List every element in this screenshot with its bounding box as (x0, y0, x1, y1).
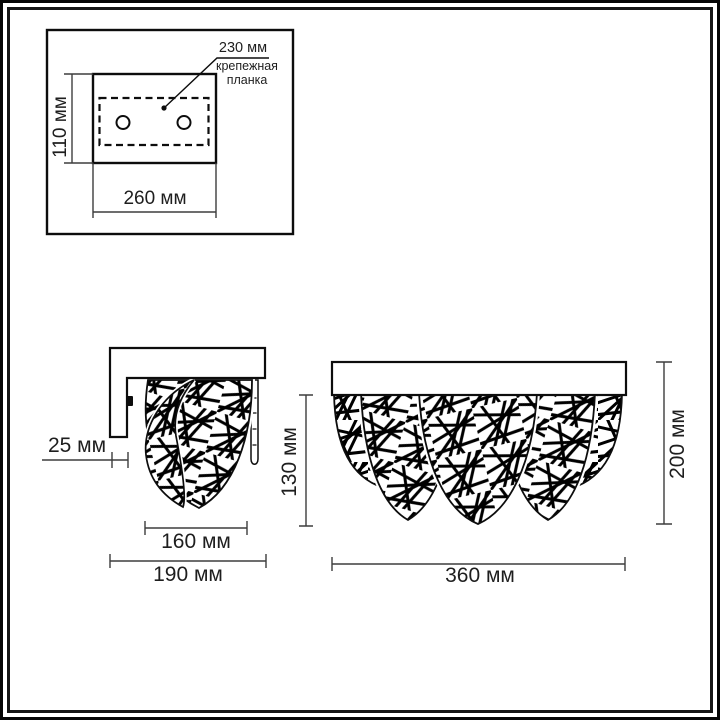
dimension-label-plate-width: 260 мм (112, 189, 198, 209)
mounting-plate-caption-line2: планка (227, 73, 268, 87)
mounting-plate-caption: крепежная планка (207, 60, 287, 88)
dimension-label-wall-offset: 25 мм (34, 435, 120, 457)
line-art (0, 0, 720, 720)
front-top-plate (332, 362, 626, 395)
dimension-label-total-depth: 190 мм (145, 564, 231, 586)
dimension-label-shade-height: 130 мм (279, 419, 301, 505)
side-view-drawing (110, 348, 265, 508)
dimension-label-total-width: 360 мм (437, 565, 523, 587)
dimension-label-shade-width: 160 мм (153, 531, 239, 553)
bracket-knob (126, 396, 133, 406)
front-petal-center (419, 393, 537, 524)
dimension-label-hole-spacing: 230 мм (203, 41, 283, 56)
mounting-plate-caption-line1: крепежная (216, 59, 278, 73)
lamp-dimension-diagram: 230 мм крепежная планка 110 мм 260 мм 25… (0, 0, 720, 720)
dimension-label-plate-height: 110 мм (51, 84, 71, 170)
front-view-drawing (332, 362, 626, 524)
dimension-label-total-height: 200 мм (667, 401, 689, 487)
